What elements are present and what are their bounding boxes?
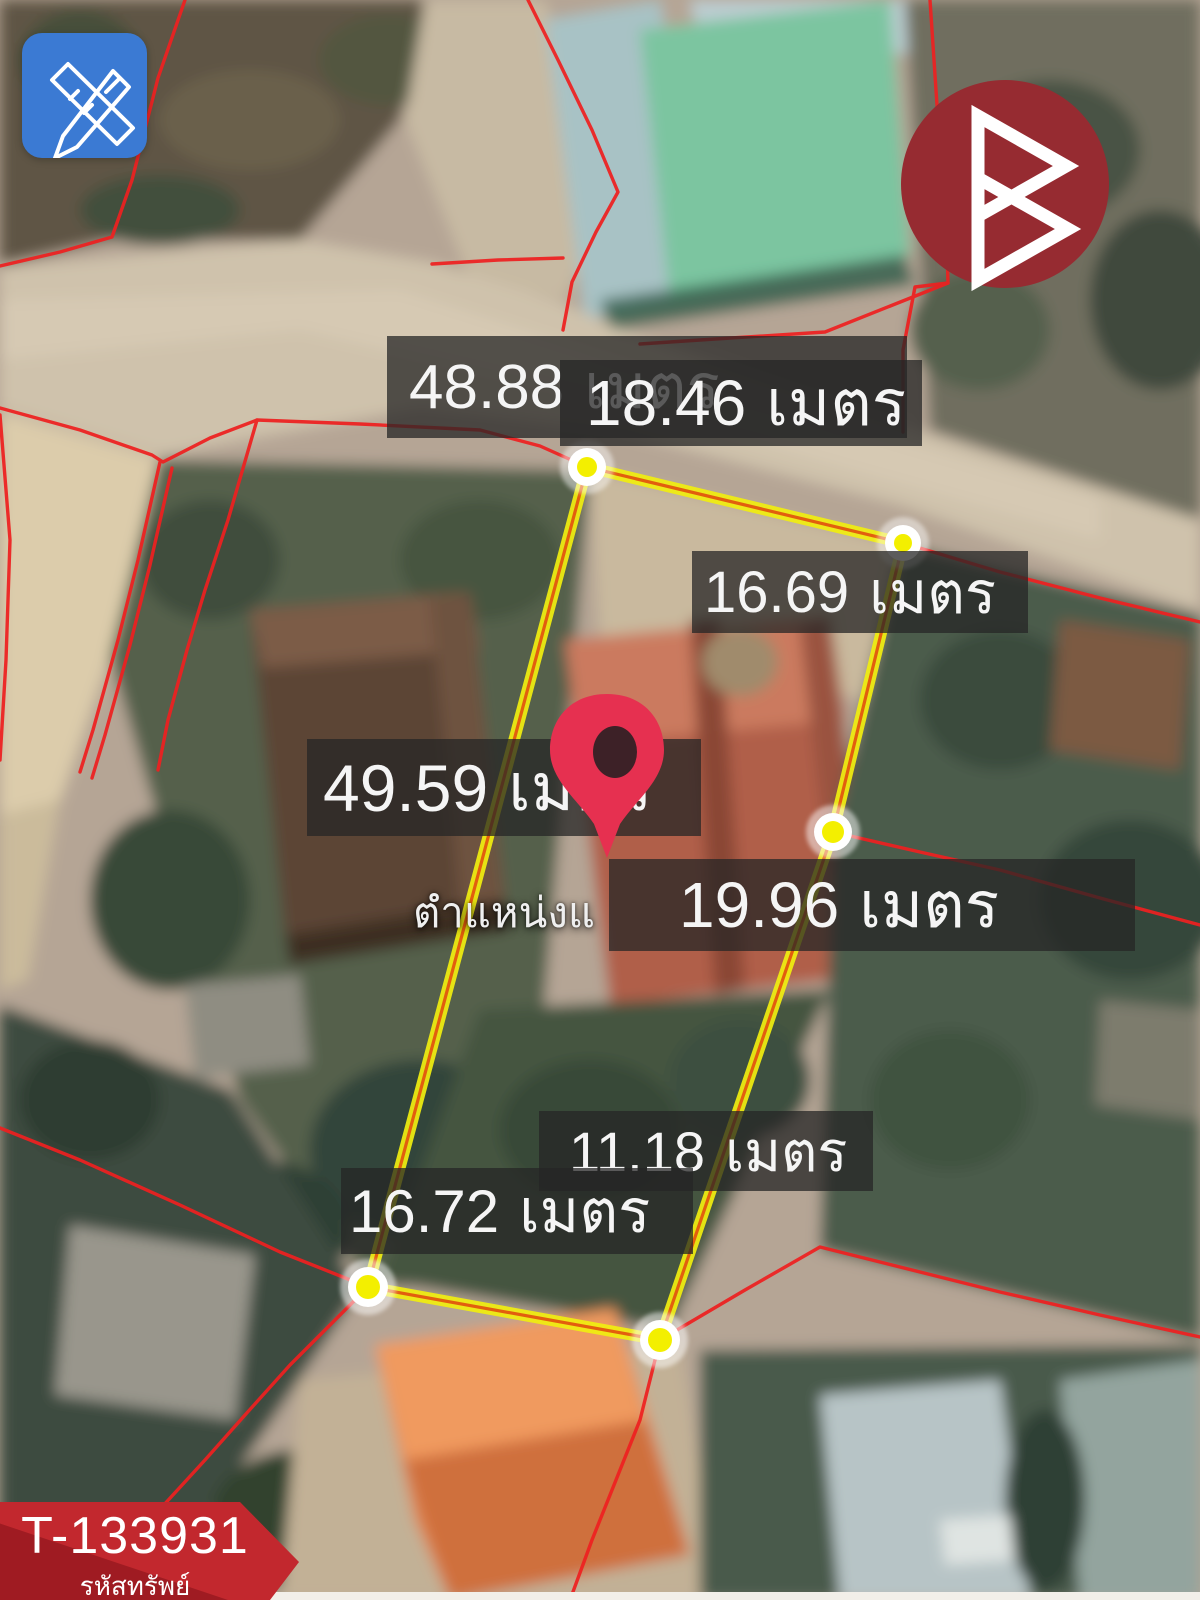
measurement-unit: เมตร — [766, 360, 906, 446]
measurement-value: 48.88 — [409, 352, 564, 423]
boundary-vertex — [806, 805, 860, 859]
property-map-screenshot: ตำแหน่งแ 48.88 เมตร 18.46 เมตร 16.69 เมต… — [0, 0, 1200, 1600]
boundary-vertex — [340, 1259, 396, 1315]
boundary-vertex — [632, 1312, 688, 1368]
location-pin-marker — [545, 688, 670, 873]
measurement-unit: เมตร — [519, 1168, 650, 1254]
measurement-unit: เมตร — [859, 859, 999, 951]
measurement-unit: เมตร — [725, 1111, 848, 1191]
measurement-value: 16.72 — [349, 1177, 499, 1246]
measurement-value: 16.69 — [704, 559, 849, 626]
measurement-value: 19.96 — [679, 868, 839, 942]
property-code-caption: รหัสทรัพย์ — [0, 1566, 270, 1600]
position-marker-label: ตำแหน่งแ — [413, 880, 595, 946]
measurement-unit: เมตร — [869, 551, 996, 633]
measurement-label-upper-right: 16.69 เมตร — [692, 551, 1028, 633]
measurement-value: 49.59 — [323, 750, 488, 826]
triangle-b-logo — [893, 78, 1119, 292]
measurement-label-bottom: 16.72 เมตร — [341, 1168, 693, 1254]
brand-logo — [893, 78, 1119, 292]
measurement-label-top: 18.46 เมตร — [560, 360, 922, 446]
measurement-value: 18.46 — [586, 366, 746, 440]
pencil-ruler-icon — [22, 33, 147, 158]
measurement-label-right: 19.96 เมตร — [609, 859, 1135, 951]
map-pin-icon — [545, 688, 670, 868]
boundary-vertex — [560, 440, 614, 494]
property-code: T-133931 — [0, 1506, 270, 1566]
edit-tool-button[interactable] — [22, 33, 147, 158]
